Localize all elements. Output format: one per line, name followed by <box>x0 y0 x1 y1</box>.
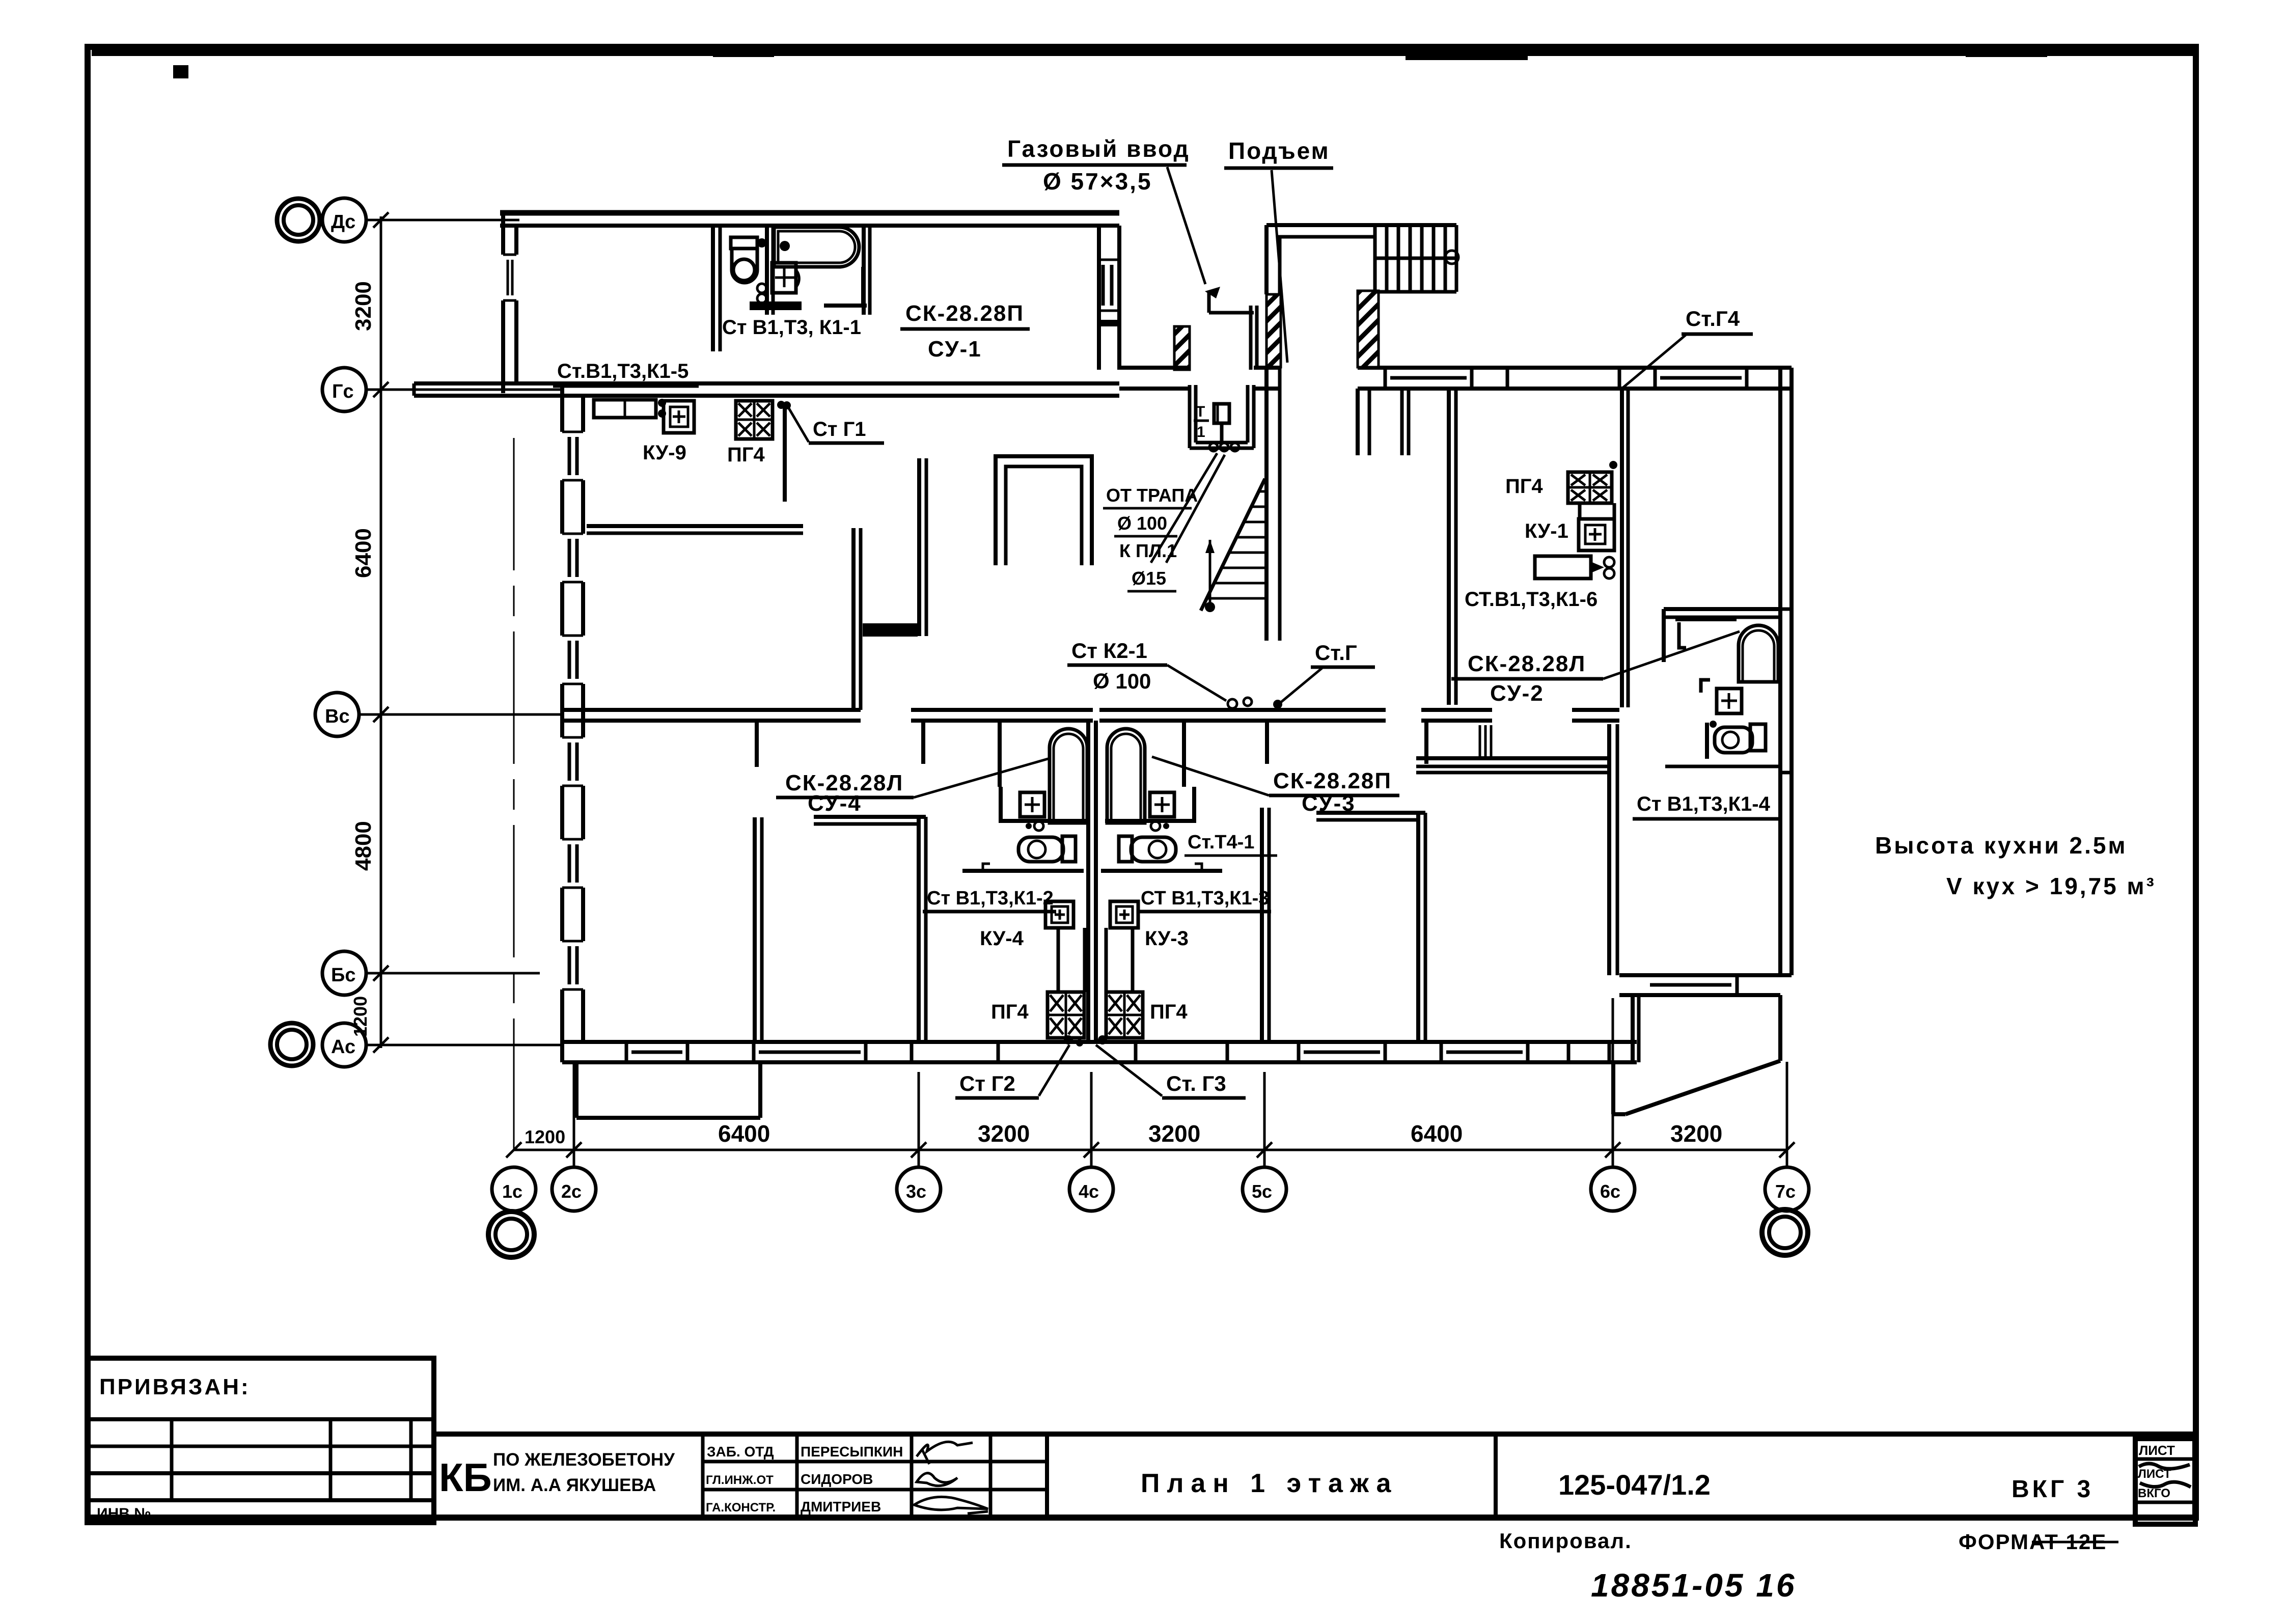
svg-text:ПЕРЕСЫПКИН: ПЕРЕСЫПКИН <box>801 1444 903 1460</box>
svg-text:5с: 5с <box>1252 1181 1272 1202</box>
svg-text:7с: 7с <box>1775 1181 1796 1202</box>
svg-text:ВКГ 3: ВКГ 3 <box>2012 1476 2094 1503</box>
svg-text:1200: 1200 <box>525 1126 565 1147</box>
svg-text:Ст В1,Т3,К1-2: Ст В1,Т3,К1-2 <box>927 888 1054 909</box>
svg-text:3200: 3200 <box>351 281 376 331</box>
svg-text:Ø 100: Ø 100 <box>1117 513 1167 534</box>
svg-text:Копировал.: Копировал. <box>1499 1529 1632 1553</box>
svg-text:СК-28.28Л: СК-28.28Л <box>1468 651 1586 676</box>
svg-text:V кух > 19,75 м³: V кух > 19,75 м³ <box>1946 873 2156 899</box>
svg-text:6400: 6400 <box>718 1120 770 1147</box>
svg-text:План 1 этажа: План 1 этажа <box>1141 1469 1398 1498</box>
svg-text:Ст.Г: Ст.Г <box>1315 641 1357 665</box>
svg-text:КУ-4: КУ-4 <box>980 927 1024 950</box>
svg-text:Вс: Вс <box>325 706 350 727</box>
svg-text:ПГ4: ПГ4 <box>1505 475 1543 498</box>
svg-text:3200: 3200 <box>978 1120 1030 1147</box>
svg-text:Ø 57×3,5: Ø 57×3,5 <box>1043 168 1152 195</box>
svg-text:КУ-9: КУ-9 <box>643 442 686 464</box>
svg-text:Ст К2-1: Ст К2-1 <box>1071 639 1147 663</box>
svg-text:6с: 6с <box>1600 1181 1620 1202</box>
svg-text:Ø 100: Ø 100 <box>1093 669 1151 693</box>
svg-text:ЗАБ. ОТД: ЗАБ. ОТД <box>707 1444 774 1460</box>
svg-text:Ø15: Ø15 <box>1132 568 1166 589</box>
svg-text:ДМИТРИЕВ: ДМИТРИЕВ <box>801 1499 881 1515</box>
svg-text:125-047/1.2: 125-047/1.2 <box>1558 1469 1711 1501</box>
svg-text:Ст.Г4: Ст.Г4 <box>1686 307 1740 331</box>
svg-text:ПРИВЯЗАН:: ПРИВЯЗАН: <box>99 1374 251 1399</box>
svg-text:1с: 1с <box>502 1181 522 1202</box>
svg-text:СК-28.28П: СК-28.28П <box>1273 768 1392 793</box>
svg-text:4с: 4с <box>1079 1181 1099 1202</box>
svg-text:КУ-3: КУ-3 <box>1145 927 1189 950</box>
svg-text:ГА.КОНСТР.: ГА.КОНСТР. <box>706 1501 776 1515</box>
svg-text:3200: 3200 <box>1148 1120 1200 1147</box>
svg-text:Ас: Ас <box>331 1036 355 1058</box>
svg-text:СТ.В1,Т3,К1-6: СТ.В1,Т3,К1-6 <box>1465 588 1598 611</box>
svg-text:3200: 3200 <box>1670 1120 1722 1147</box>
svg-text:Ст Г1: Ст Г1 <box>813 418 866 441</box>
svg-text:Газовый ввод: Газовый ввод <box>1007 135 1190 162</box>
svg-text:ИМ. А.А ЯКУШЕВА: ИМ. А.А ЯКУШЕВА <box>493 1475 656 1495</box>
svg-text:ОТ ТРАПА: ОТ ТРАПА <box>1106 485 1198 506</box>
svg-text:Ст Г2: Ст Г2 <box>959 1071 1015 1095</box>
svg-text:СИДОРОВ: СИДОРОВ <box>801 1471 873 1487</box>
svg-text:СУ-1: СУ-1 <box>928 337 982 362</box>
svg-text:ГЛ.ИНЖ.ОТ: ГЛ.ИНЖ.ОТ <box>706 1473 774 1487</box>
svg-text:2с: 2с <box>561 1181 582 1202</box>
svg-text:Ст. Г3: Ст. Г3 <box>1166 1071 1226 1095</box>
svg-text:ЛИСТ: ЛИСТ <box>2139 1443 2175 1458</box>
svg-text:Дс: Дс <box>331 211 355 233</box>
svg-text:КБ: КБ <box>439 1455 492 1500</box>
svg-text:Бс: Бс <box>331 965 355 986</box>
svg-text:ПО ЖЕЛЕЗОБЕТОНУ: ПО ЖЕЛЕЗОБЕТОНУ <box>493 1450 675 1470</box>
svg-text:К ПЛ.1: К ПЛ.1 <box>1119 540 1177 561</box>
svg-text:ПГ4: ПГ4 <box>727 444 765 466</box>
svg-text:Высота кухни 2.5м: Высота кухни 2.5м <box>1875 832 2128 859</box>
svg-text:Ст В1,Т3,К1-4: Ст В1,Т3,К1-4 <box>1637 793 1771 815</box>
svg-text:КУ-1: КУ-1 <box>1525 520 1568 542</box>
svg-text:СК-28.28П: СК-28.28П <box>905 301 1024 326</box>
svg-text:Т: Т <box>1196 403 1205 420</box>
svg-text:ПГ4: ПГ4 <box>991 1001 1029 1023</box>
svg-text:СТ В1,Т3,К1-3: СТ В1,Т3,К1-3 <box>1141 888 1269 909</box>
svg-text:СУ-2: СУ-2 <box>1490 681 1544 706</box>
svg-text:3с: 3с <box>906 1181 926 1202</box>
svg-text:1200: 1200 <box>350 996 371 1037</box>
svg-text:1: 1 <box>1197 424 1205 441</box>
svg-text:СУ-3: СУ-3 <box>1302 791 1356 816</box>
svg-text:Ст.В1,Т3,К1-5: Ст.В1,Т3,К1-5 <box>557 360 688 382</box>
svg-text:ВКГО: ВКГО <box>2138 1487 2170 1500</box>
svg-text:Подъем: Подъем <box>1228 137 1330 164</box>
svg-text:СУ-4: СУ-4 <box>808 791 862 816</box>
svg-text:ПГ4: ПГ4 <box>1150 1001 1188 1023</box>
svg-text:18851-05 16: 18851-05 16 <box>1591 1567 1796 1604</box>
svg-text:Ст.Т4-1: Ст.Т4-1 <box>1188 832 1254 853</box>
svg-text:4800: 4800 <box>351 821 376 871</box>
svg-text:ИНВ №: ИНВ № <box>97 1505 151 1522</box>
svg-text:Гс: Гс <box>332 381 354 402</box>
svg-text:6400: 6400 <box>1411 1120 1463 1147</box>
svg-text:6400: 6400 <box>351 528 376 578</box>
svg-text:Ст В1,Т3, К1-1: Ст В1,Т3, К1-1 <box>722 316 861 339</box>
